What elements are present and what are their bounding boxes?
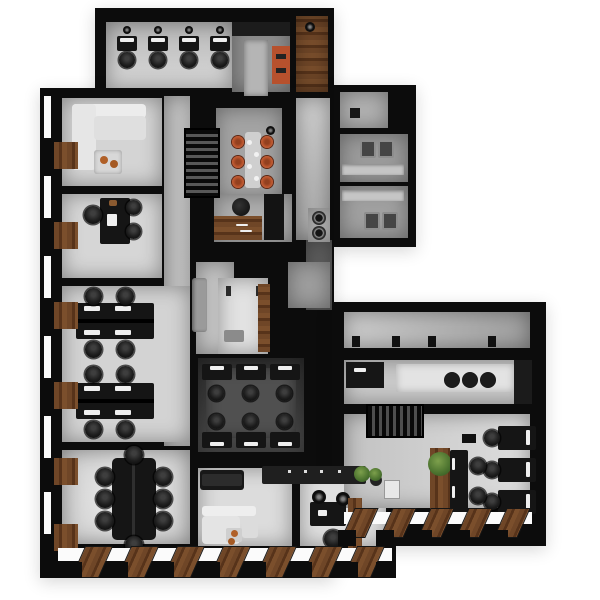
office-chair bbox=[243, 386, 258, 401]
office-chair bbox=[117, 421, 134, 438]
locker-slot bbox=[276, 68, 286, 73]
guest-chair bbox=[126, 224, 141, 239]
monitor-arm-icon bbox=[216, 26, 224, 34]
monitor bbox=[278, 442, 292, 446]
monitor bbox=[115, 306, 131, 311]
office-chair bbox=[117, 341, 134, 358]
door-frame bbox=[352, 336, 360, 347]
washing-machine bbox=[312, 226, 326, 240]
monitor-arm-icon bbox=[154, 26, 162, 34]
monitor bbox=[244, 442, 258, 446]
window-glass bbox=[44, 336, 51, 378]
booth-bench bbox=[224, 330, 244, 342]
gray-sofa bbox=[192, 278, 207, 332]
office-chair bbox=[85, 366, 102, 383]
printer bbox=[384, 480, 400, 499]
window-pier bbox=[246, 562, 266, 578]
toilet bbox=[364, 212, 380, 230]
floor-wc-small bbox=[340, 92, 388, 128]
toilet bbox=[378, 140, 394, 158]
office-chair bbox=[209, 386, 224, 401]
pendant-light-icon bbox=[305, 22, 315, 32]
bar-dot bbox=[338, 470, 341, 473]
pendant-light-icon bbox=[312, 490, 326, 504]
plate bbox=[254, 176, 259, 181]
monitor bbox=[115, 386, 131, 391]
orange-stool bbox=[232, 156, 244, 168]
monitor bbox=[526, 494, 530, 509]
door-frame bbox=[392, 336, 400, 347]
conference-chair bbox=[154, 490, 172, 508]
monitor bbox=[84, 410, 100, 415]
tree-plant bbox=[428, 452, 452, 476]
utensil bbox=[236, 224, 248, 226]
wood-panel bbox=[258, 284, 270, 352]
window-glass bbox=[44, 492, 51, 534]
office-chair bbox=[484, 462, 500, 478]
stairs bbox=[184, 128, 220, 198]
door-frame bbox=[488, 336, 496, 347]
orange-stool bbox=[232, 136, 244, 148]
washing-machine bbox=[312, 211, 326, 225]
window-glass bbox=[44, 176, 51, 218]
tall-cabinet bbox=[264, 194, 284, 240]
fridge bbox=[244, 40, 268, 96]
office-chair bbox=[277, 414, 292, 429]
office-chair bbox=[181, 52, 197, 68]
conference-chair bbox=[125, 446, 143, 464]
monitor-arm-icon bbox=[185, 26, 193, 34]
plate bbox=[247, 164, 252, 169]
coffee-machine bbox=[232, 198, 250, 216]
desk bbox=[498, 458, 536, 482]
laptop bbox=[107, 214, 117, 226]
white-chaise-back bbox=[202, 506, 256, 516]
monitor bbox=[210, 442, 224, 446]
window-sill bbox=[54, 458, 78, 485]
window-sill bbox=[54, 222, 78, 249]
window-pier bbox=[338, 562, 358, 578]
office-chair bbox=[119, 52, 135, 68]
table-spine bbox=[132, 462, 135, 536]
moss-ball-plant bbox=[354, 466, 370, 482]
office-chair bbox=[117, 288, 134, 305]
monitor bbox=[84, 330, 100, 335]
office-chair bbox=[117, 366, 134, 383]
white-sofa-seat bbox=[94, 116, 146, 140]
sink-basin bbox=[462, 372, 478, 388]
office-chair bbox=[85, 341, 102, 358]
orange-bowl bbox=[231, 530, 238, 537]
window-pier bbox=[200, 562, 220, 578]
bar-dot bbox=[320, 470, 323, 473]
conference-chair bbox=[96, 512, 114, 530]
orange-stool bbox=[261, 136, 273, 148]
window-glass bbox=[44, 416, 51, 458]
monitor bbox=[84, 386, 100, 391]
monitor bbox=[213, 38, 227, 42]
orange-stool bbox=[232, 176, 244, 188]
monitor bbox=[244, 366, 258, 370]
booth-door-frame bbox=[226, 286, 231, 296]
window-sill bbox=[54, 142, 78, 169]
orange-bowl bbox=[100, 156, 108, 164]
window-pier bbox=[376, 562, 396, 578]
bar-dot bbox=[288, 470, 291, 473]
plate bbox=[254, 152, 259, 157]
desk bbox=[498, 426, 536, 450]
conference-chair bbox=[154, 512, 172, 530]
monitor bbox=[120, 38, 134, 42]
floor-plan bbox=[0, 0, 600, 600]
utensil bbox=[240, 230, 252, 232]
appliance-handle bbox=[354, 368, 366, 372]
plate bbox=[247, 140, 252, 145]
monitor bbox=[526, 462, 530, 477]
window-pier bbox=[338, 530, 356, 546]
counter-black bbox=[232, 22, 290, 36]
bar-counter bbox=[262, 466, 366, 484]
stairs bbox=[366, 404, 424, 438]
window-pier bbox=[154, 562, 174, 578]
window-sill bbox=[54, 382, 78, 409]
orange-locker bbox=[272, 46, 290, 84]
toilet bbox=[360, 140, 376, 158]
paper bbox=[318, 510, 327, 516]
office-chair bbox=[470, 488, 486, 504]
monitor bbox=[115, 330, 131, 335]
bar-dot bbox=[304, 470, 307, 473]
door-frame bbox=[428, 336, 436, 347]
monitor bbox=[278, 366, 292, 370]
cabinet bbox=[462, 434, 476, 443]
office-chair bbox=[277, 386, 292, 401]
monitor-arm-icon bbox=[123, 26, 131, 34]
window-pier bbox=[376, 530, 394, 546]
monitor bbox=[182, 38, 196, 42]
window-glass bbox=[44, 256, 51, 298]
guest-chair bbox=[126, 200, 141, 215]
monitor bbox=[115, 410, 131, 415]
window-pier bbox=[414, 530, 432, 546]
office-chair bbox=[243, 414, 258, 429]
window-sill bbox=[54, 524, 78, 551]
executive-chair bbox=[84, 206, 102, 224]
orange-bowl bbox=[110, 160, 118, 168]
office-chair bbox=[470, 458, 486, 474]
monitor bbox=[210, 366, 224, 370]
sink-basin bbox=[444, 372, 460, 388]
office-chair bbox=[209, 414, 224, 429]
sink-counter bbox=[342, 164, 404, 175]
window-pier bbox=[452, 530, 470, 546]
window-pier bbox=[490, 530, 508, 546]
conference-chair bbox=[154, 468, 172, 486]
window-sill bbox=[54, 302, 78, 329]
office-chair bbox=[85, 421, 102, 438]
wood-counter bbox=[214, 216, 262, 240]
kettle bbox=[266, 126, 275, 135]
floor-corridor-right bbox=[344, 312, 530, 348]
office-chair bbox=[85, 288, 102, 305]
conference-chair bbox=[96, 490, 114, 508]
locker-slot bbox=[276, 54, 286, 59]
floor-corridor-lower bbox=[288, 262, 330, 308]
monitor bbox=[151, 38, 165, 42]
appliance-block bbox=[346, 362, 384, 388]
toilet bbox=[382, 212, 398, 230]
window-pier bbox=[108, 562, 128, 578]
conference-chair bbox=[96, 468, 114, 486]
monitor bbox=[84, 306, 100, 311]
desk-decor bbox=[109, 200, 117, 206]
kitchen-dark-end bbox=[514, 360, 532, 404]
monitor bbox=[452, 486, 455, 498]
desk-spine bbox=[76, 319, 154, 323]
window-pier bbox=[524, 530, 542, 546]
window-glass bbox=[44, 96, 51, 138]
black-sofa-seat bbox=[202, 474, 242, 486]
office-chair bbox=[212, 52, 228, 68]
monitor bbox=[452, 458, 455, 470]
office-chair bbox=[484, 430, 500, 446]
wc-door-mark bbox=[350, 108, 360, 118]
window-pier bbox=[62, 562, 82, 578]
monitor bbox=[526, 430, 530, 445]
white-ottoman bbox=[242, 516, 258, 538]
office-chair bbox=[150, 52, 166, 68]
sink-counter bbox=[342, 190, 404, 201]
orange-stool bbox=[261, 156, 273, 168]
orange-bowl bbox=[228, 538, 235, 545]
sink-basin bbox=[480, 372, 496, 388]
window-pier bbox=[292, 562, 312, 578]
desk-spine bbox=[76, 399, 154, 403]
orange-stool bbox=[261, 176, 273, 188]
plant bbox=[369, 468, 382, 481]
